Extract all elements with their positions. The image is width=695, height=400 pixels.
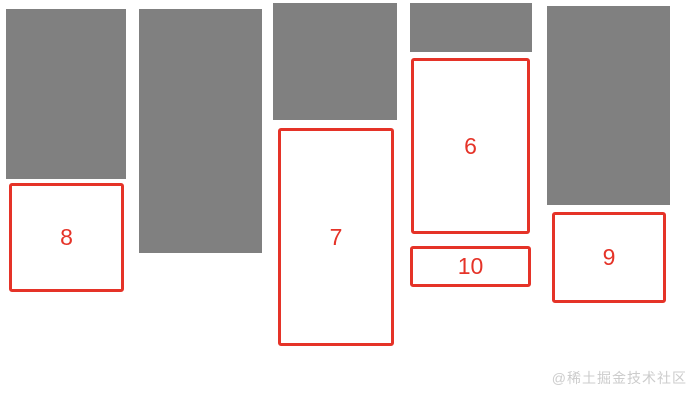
gray-image-block: [273, 3, 397, 120]
community-watermark: @稀土掘金技术社区: [552, 368, 687, 388]
card-index-label: 7: [330, 226, 343, 249]
masonry-stage: @稀土掘金技术社区 876109: [0, 0, 695, 400]
numbered-placeholder-card: 6: [411, 58, 530, 234]
numbered-placeholder-card: 10: [410, 246, 531, 287]
card-index-label: 10: [458, 255, 484, 278]
gray-image-block: [410, 3, 532, 52]
numbered-placeholder-card: 9: [552, 212, 666, 303]
gray-image-block: [6, 9, 126, 179]
card-index-label: 6: [464, 135, 477, 158]
numbered-placeholder-card: 8: [9, 183, 124, 292]
card-index-label: 9: [603, 246, 616, 269]
numbered-placeholder-card: 7: [278, 128, 394, 346]
gray-image-block: [547, 6, 670, 205]
gray-image-block: [139, 9, 262, 253]
card-index-label: 8: [60, 226, 73, 249]
